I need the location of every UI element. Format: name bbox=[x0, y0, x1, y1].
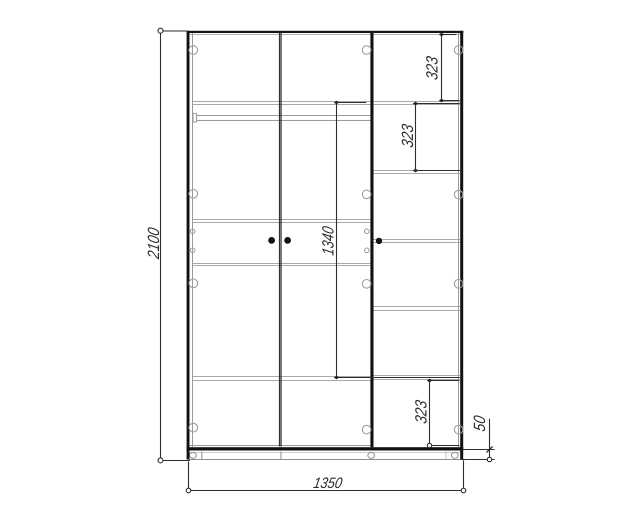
svg-text:323: 323 bbox=[399, 122, 417, 149]
svg-text:1340: 1340 bbox=[319, 225, 337, 257]
svg-text:323: 323 bbox=[413, 398, 431, 425]
svg-text:50: 50 bbox=[471, 414, 489, 433]
svg-text:1350: 1350 bbox=[312, 475, 343, 492]
svg-text:2100: 2100 bbox=[145, 226, 163, 261]
svg-text:323: 323 bbox=[423, 55, 441, 82]
